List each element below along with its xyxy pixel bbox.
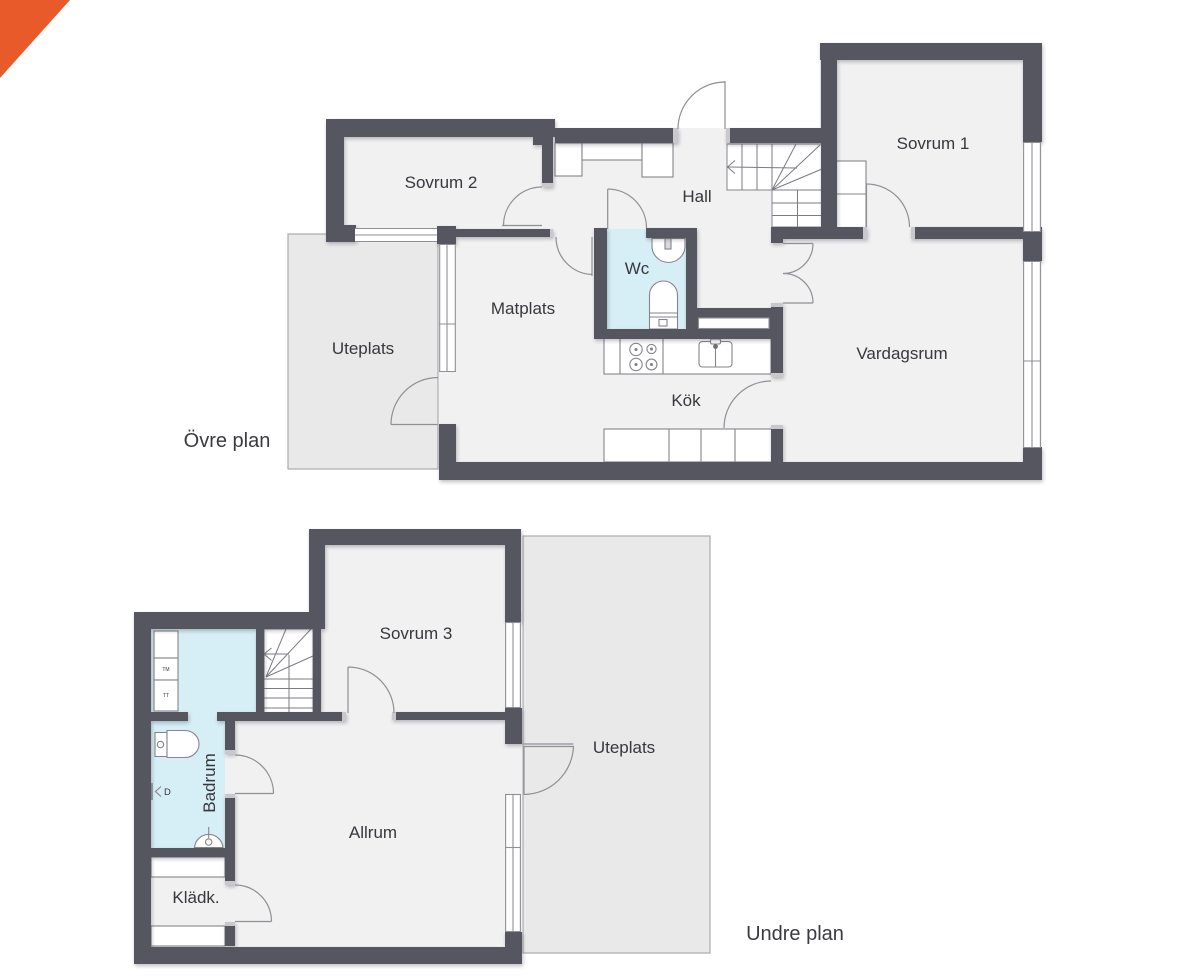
svg-text:Sovrum 2: Sovrum 2	[405, 173, 478, 192]
svg-text:Uteplats: Uteplats	[593, 738, 655, 757]
svg-text:Allrum: Allrum	[349, 823, 397, 842]
svg-text:Undre plan: Undre plan	[746, 923, 844, 945]
svg-text:Sovrum 1: Sovrum 1	[897, 134, 970, 153]
svg-text:Kök: Kök	[671, 391, 701, 410]
svg-text:TT: TT	[163, 693, 169, 699]
svg-text:Klädk.: Klädk.	[172, 888, 219, 907]
svg-text:Badrum: Badrum	[200, 753, 219, 813]
svg-text:Hall: Hall	[682, 187, 711, 206]
svg-text:TM: TM	[162, 667, 169, 673]
svg-text:D: D	[164, 787, 171, 798]
svg-text:Vardagsrum: Vardagsrum	[856, 344, 947, 363]
svg-text:Sovrum 3: Sovrum 3	[380, 624, 453, 643]
svg-text:Uteplats: Uteplats	[332, 339, 394, 358]
svg-text:Matplats: Matplats	[491, 299, 555, 318]
svg-text:Övre plan: Övre plan	[184, 430, 271, 452]
svg-text:Wc: Wc	[625, 259, 650, 278]
